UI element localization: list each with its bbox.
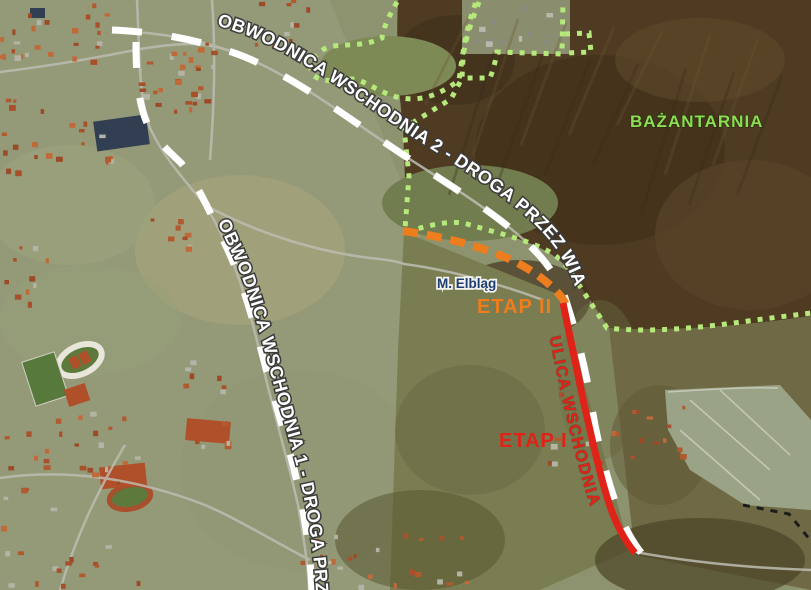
aerial-map: OBWODNICA WSCHODNIA 2 - DROGA PRZEZ WIAT… xyxy=(0,0,811,590)
aerial-background xyxy=(0,0,811,590)
city-label: M. Elbląg xyxy=(437,276,496,291)
bazantarnia-label: BAŻANTARNIA xyxy=(630,112,763,131)
etap2-label: ETAP II xyxy=(477,296,552,318)
etap1-label: ETAP I xyxy=(499,430,568,452)
